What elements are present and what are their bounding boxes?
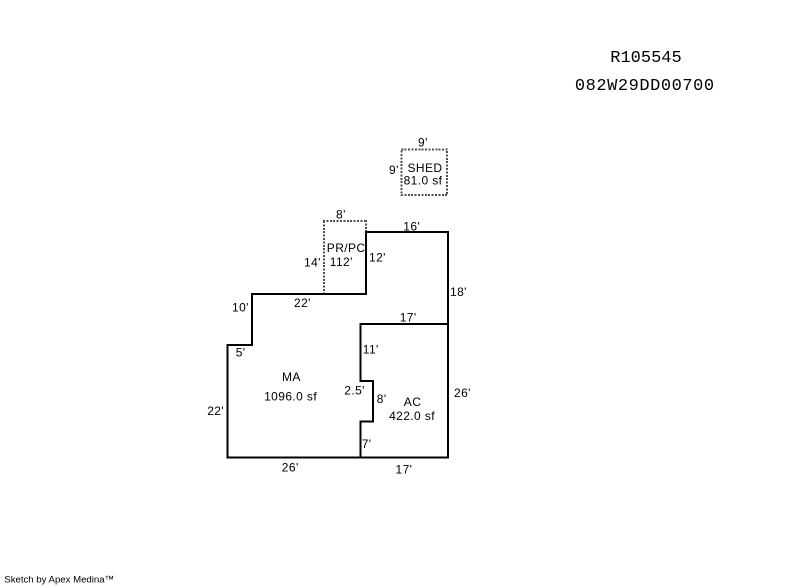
- svg-text:9': 9': [389, 163, 399, 177]
- svg-text:12': 12': [369, 250, 386, 264]
- svg-text:10': 10': [232, 301, 249, 315]
- svg-text:8': 8': [336, 208, 346, 222]
- svg-text:18': 18': [450, 285, 467, 299]
- svg-text:17': 17': [400, 310, 417, 324]
- svg-text:R105545: R105545: [610, 49, 681, 68]
- svg-text:22': 22': [294, 296, 311, 310]
- svg-text:112': 112': [330, 255, 353, 269]
- svg-text:082W29DD00700: 082W29DD00700: [575, 77, 715, 96]
- svg-text:11': 11': [363, 342, 379, 356]
- svg-text:16': 16': [403, 220, 420, 234]
- svg-text:7': 7': [362, 437, 372, 451]
- svg-text:PR/PC: PR/PC: [327, 241, 366, 255]
- svg-text:26': 26': [454, 386, 471, 400]
- svg-text:14': 14': [304, 255, 321, 269]
- svg-text:1096.0 sf: 1096.0 sf: [264, 390, 317, 404]
- svg-text:81.0 sf: 81.0 sf: [404, 173, 443, 187]
- svg-text:AC: AC: [404, 395, 421, 409]
- svg-text:5': 5': [236, 346, 246, 360]
- svg-text:9': 9': [418, 135, 428, 149]
- svg-text:22': 22': [207, 404, 224, 418]
- svg-text:MA: MA: [282, 370, 301, 384]
- svg-text:Sketch by Apex Medina™: Sketch by Apex Medina™: [4, 575, 114, 586]
- svg-text:26': 26': [282, 461, 299, 475]
- svg-text:8': 8': [377, 392, 387, 406]
- svg-text:2.5': 2.5': [344, 383, 365, 397]
- svg-text:17': 17': [396, 463, 413, 477]
- svg-text:422.0 sf: 422.0 sf: [389, 409, 435, 423]
